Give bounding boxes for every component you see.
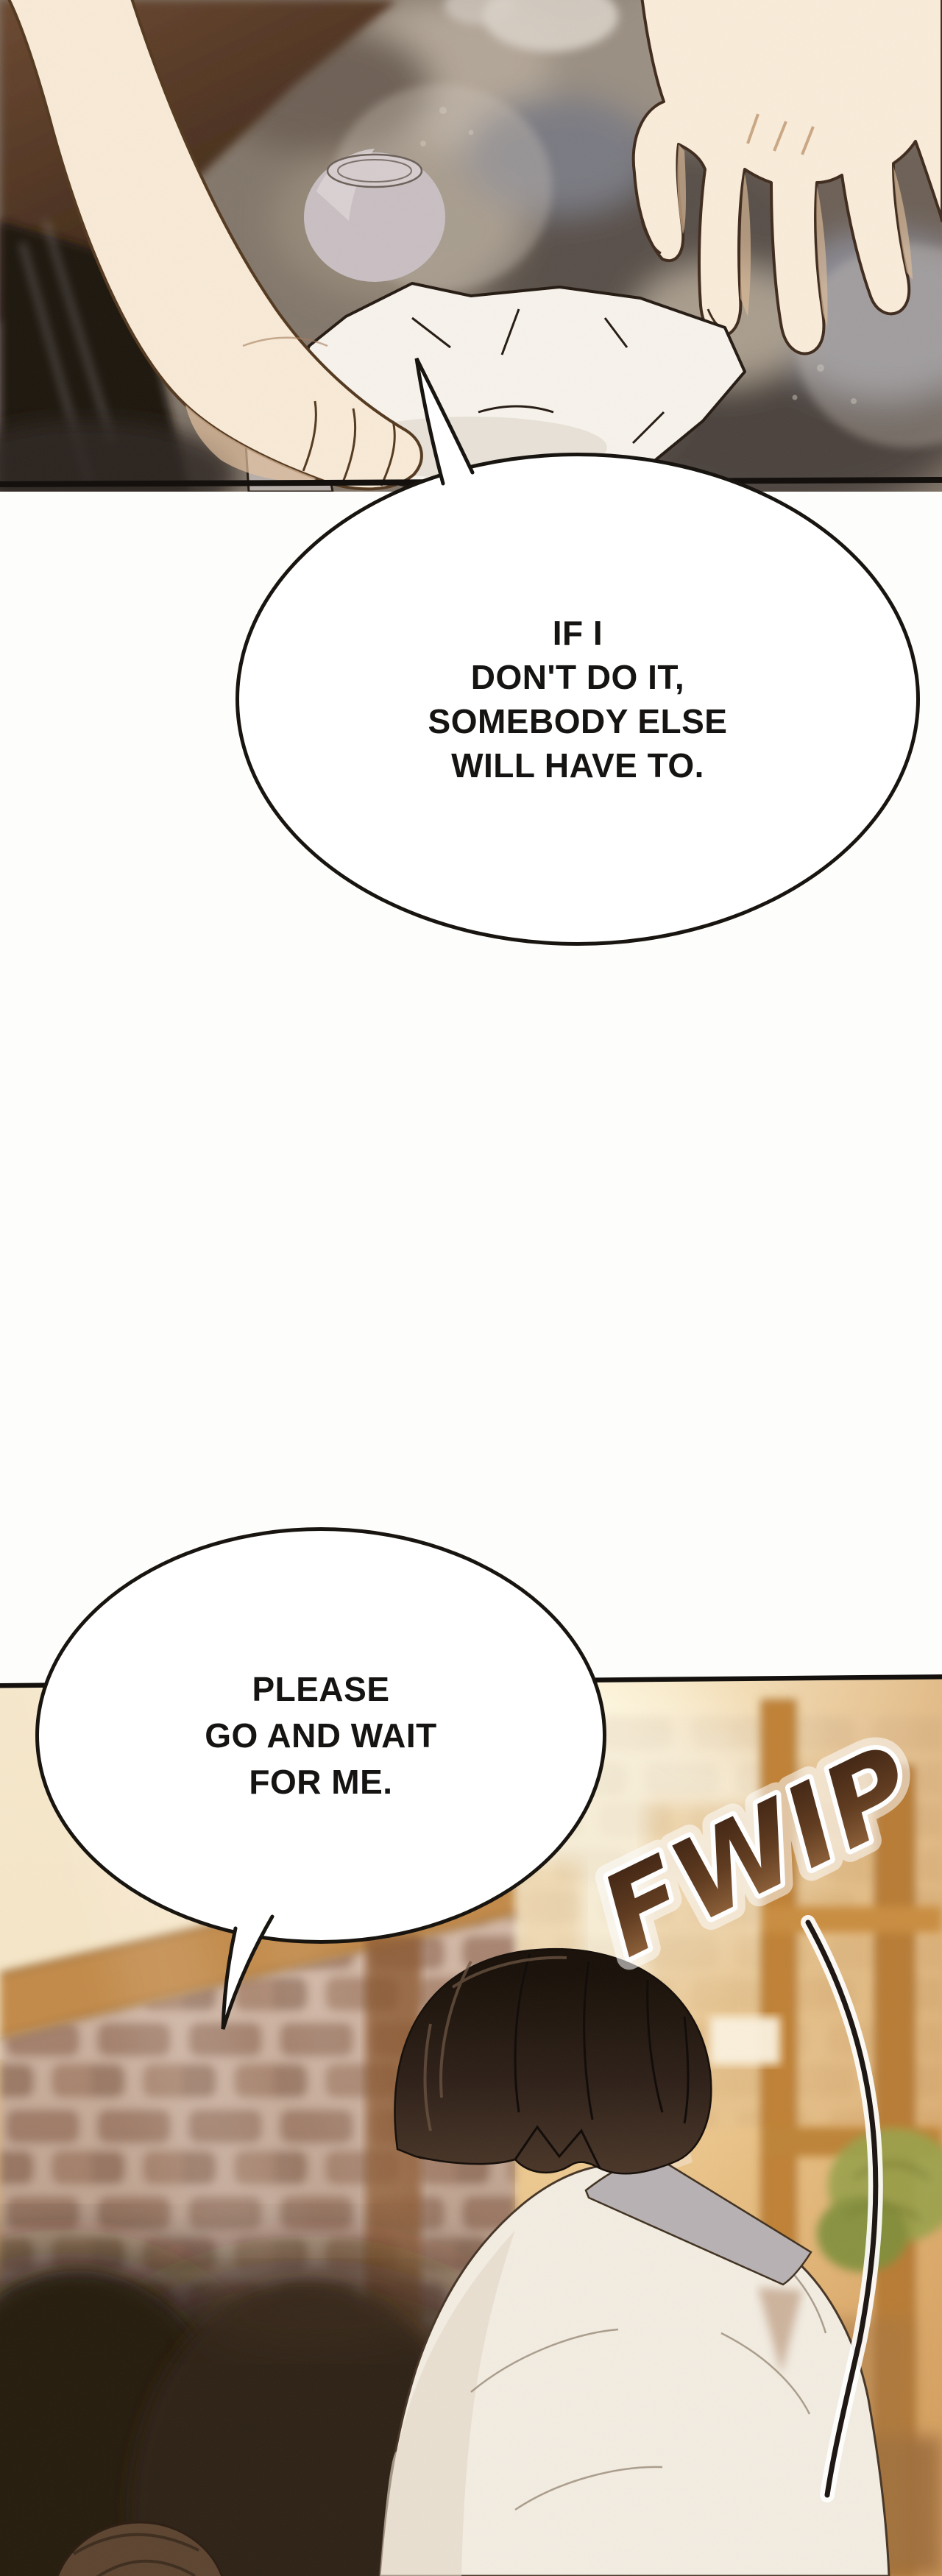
speech-line: SOMEBODY ELSE <box>428 699 728 743</box>
speech-line: WILL HAVE TO. <box>428 743 728 788</box>
speech-line: GO AND WAIT <box>205 1713 437 1759</box>
speech-bubble-1: IF I DON'T DO IT, SOMEBODY ELSE WILL HAV… <box>235 453 920 946</box>
speech-bubble-2: PLEASE GO AND WAIT FOR ME. <box>35 1527 606 1944</box>
webtoon-page: IF I DON'T DO IT, SOMEBODY ELSE WILL HAV… <box>0 0 942 2576</box>
speech-bubble-2-text: PLEASE GO AND WAIT FOR ME. <box>205 1666 437 1805</box>
speech-bubble-2-tail <box>202 1897 291 2045</box>
speech-bubble-1-tail <box>397 335 500 508</box>
speech-line: DON'T DO IT, <box>428 655 728 699</box>
speech-line: PLEASE <box>205 1666 437 1713</box>
speech-bubble-1-text: IF I DON'T DO IT, SOMEBODY ELSE WILL HAV… <box>428 611 728 788</box>
speech-line: FOR ME. <box>205 1759 437 1805</box>
speech-line: IF I <box>428 611 728 655</box>
